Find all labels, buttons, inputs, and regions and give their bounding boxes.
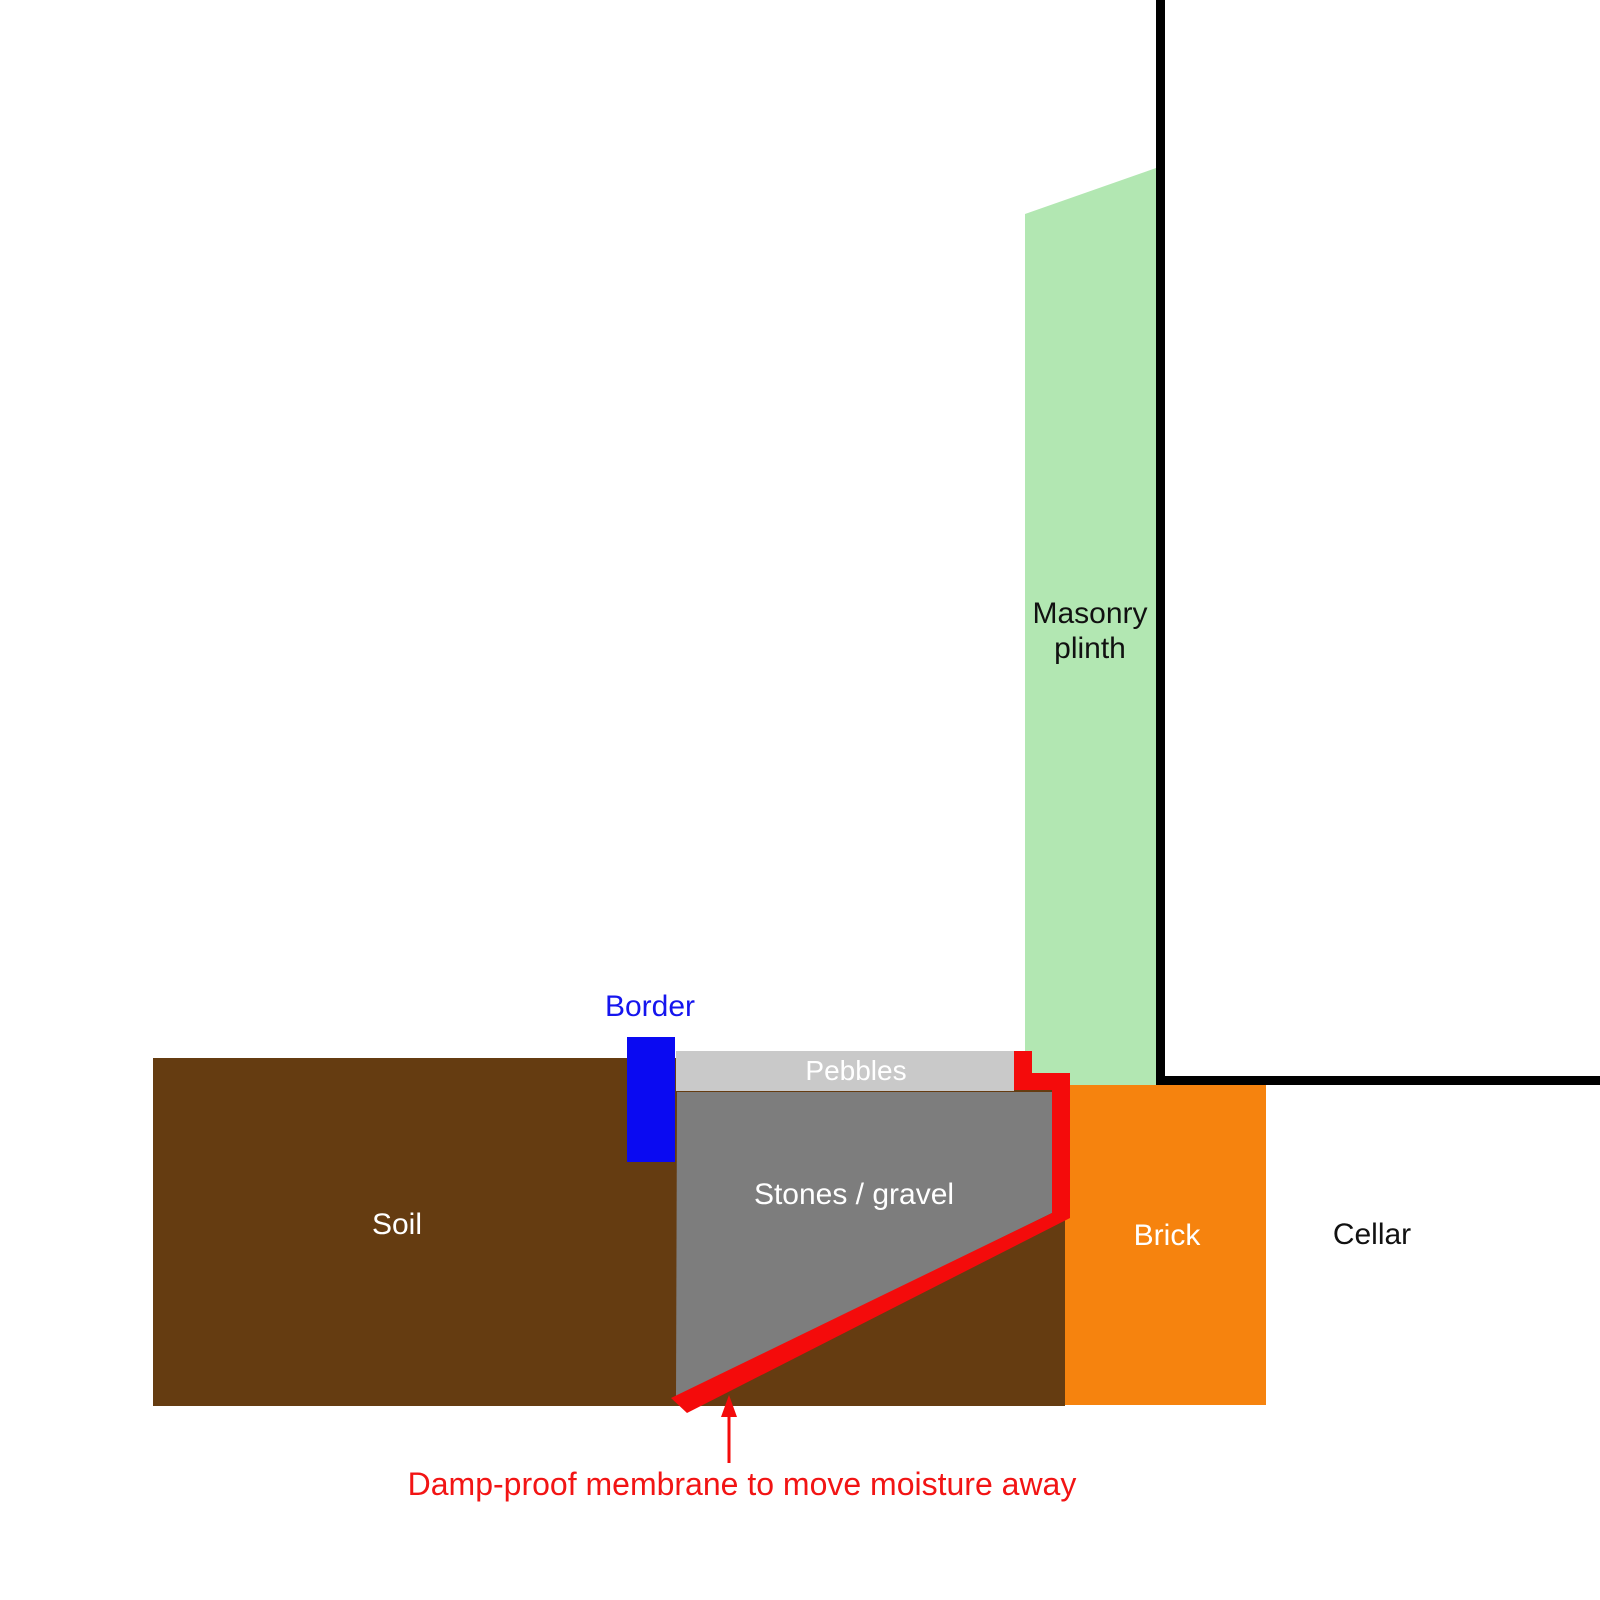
cross-section-diagram: Border Pebbles Stones / gravel Soil Maso…	[0, 0, 1600, 1600]
diagram-shapes	[0, 0, 1600, 1600]
soil-label: Soil	[372, 1208, 422, 1241]
cellar-floor-line	[1156, 1076, 1600, 1085]
border-label: Border	[605, 990, 695, 1023]
wall-line-vertical	[1156, 0, 1165, 1085]
stones-gravel-label: Stones / gravel	[754, 1178, 954, 1211]
pebbles-label: Pebbles	[805, 1056, 906, 1087]
border-kerb	[627, 1037, 675, 1162]
brick-label: Brick	[1134, 1219, 1201, 1252]
cellar-label: Cellar	[1333, 1218, 1411, 1251]
masonry-plinth-label: Masonry plinth	[1005, 596, 1175, 666]
membrane-note-label: Damp-proof membrane to move moisture awa…	[408, 1467, 1077, 1502]
